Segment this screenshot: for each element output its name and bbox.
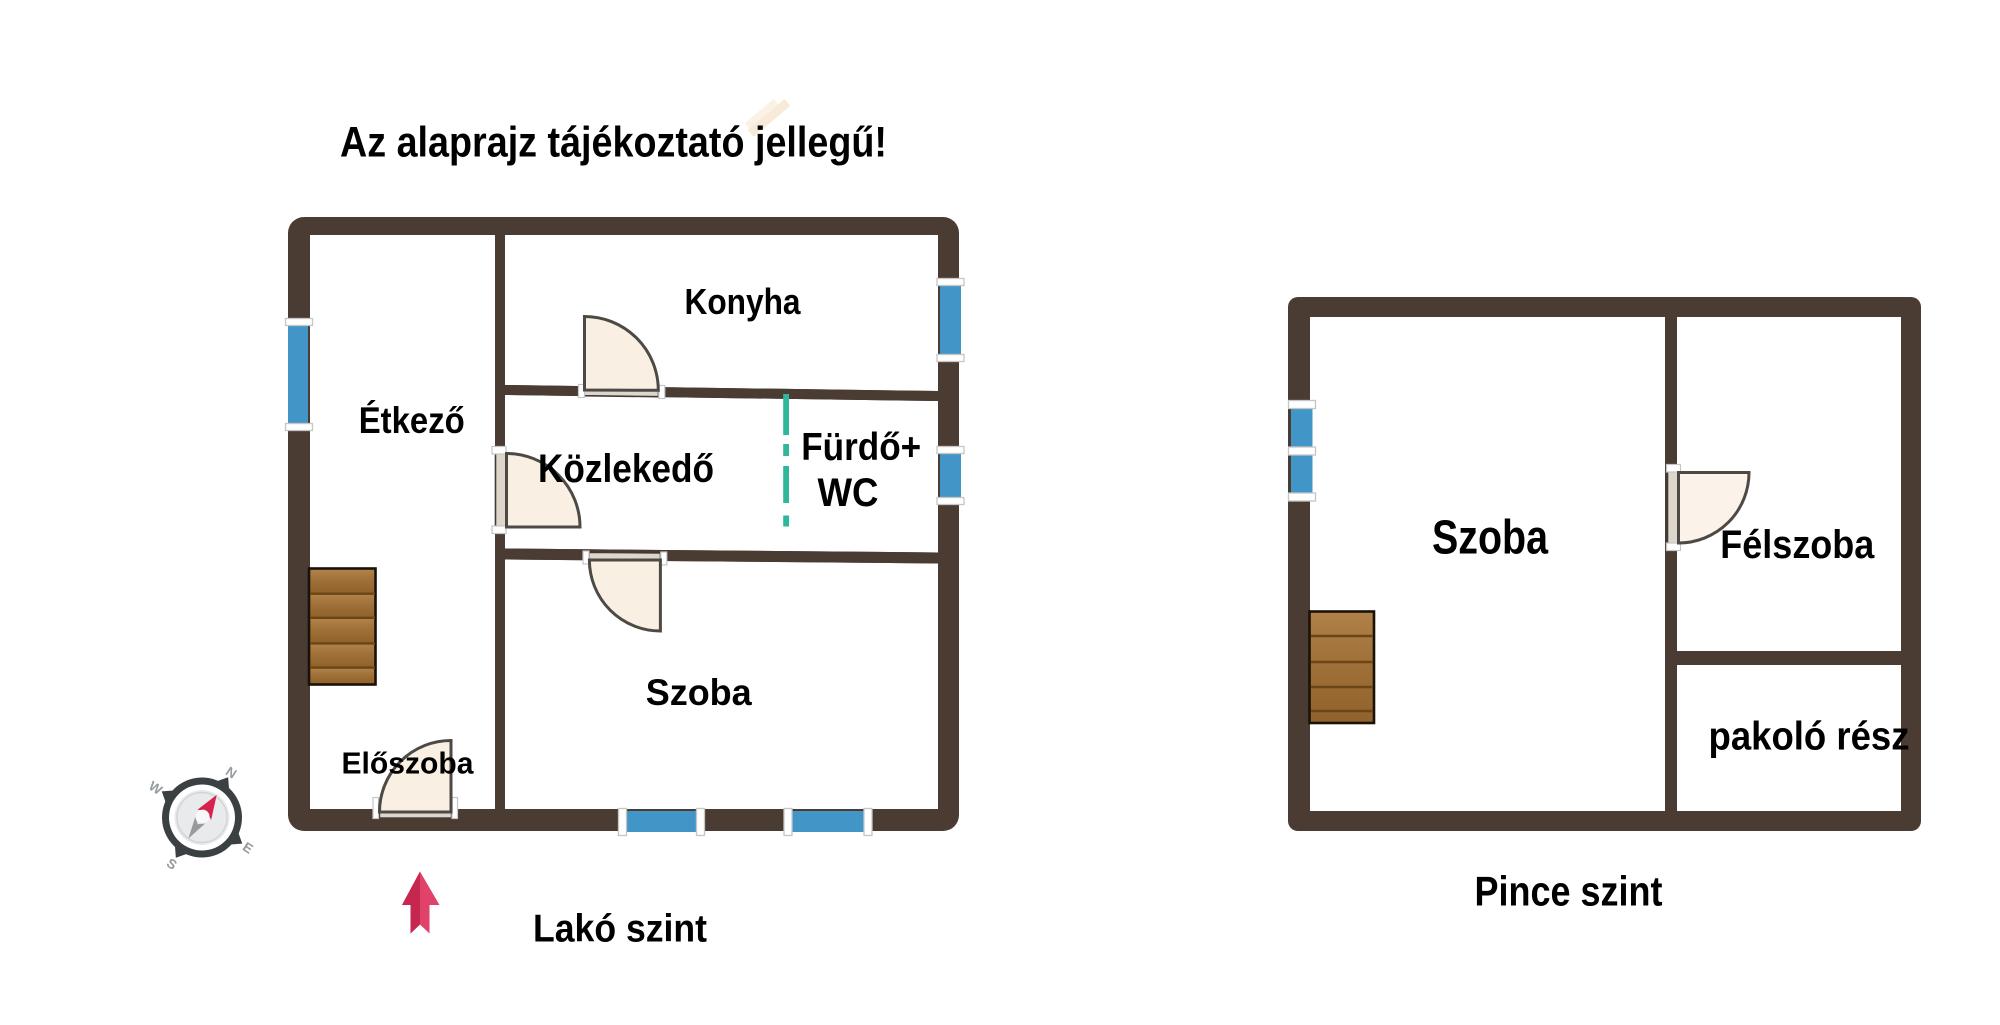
svg-text:E: E [240,839,256,856]
svg-text:Előszoba: Előszoba [342,746,475,781]
svg-text:Lakó szint: Lakó szint [533,908,707,951]
svg-text:WC: WC [818,471,879,515]
svg-text:Konyha: Konyha [685,281,802,322]
svg-text:Szoba: Szoba [646,672,752,713]
svg-text:W: W [146,778,165,798]
svg-text:S: S [164,855,180,872]
svg-text:Szoba: Szoba [1432,512,1548,565]
svg-text:Közlekedő: Közlekedő [538,447,714,491]
svg-text:Étkező: Étkező [359,400,465,441]
svg-text:Fürdő+: Fürdő+ [801,426,921,469]
svg-text:pakoló rész: pakoló rész [1709,715,1910,759]
svg-text:Az alaprajz tájékoztató jelleg: Az alaprajz tájékoztató jellegű! [340,119,887,167]
svg-text:Félszoba: Félszoba [1720,523,1875,567]
svg-text:Pince szint: Pince szint [1475,868,1663,915]
